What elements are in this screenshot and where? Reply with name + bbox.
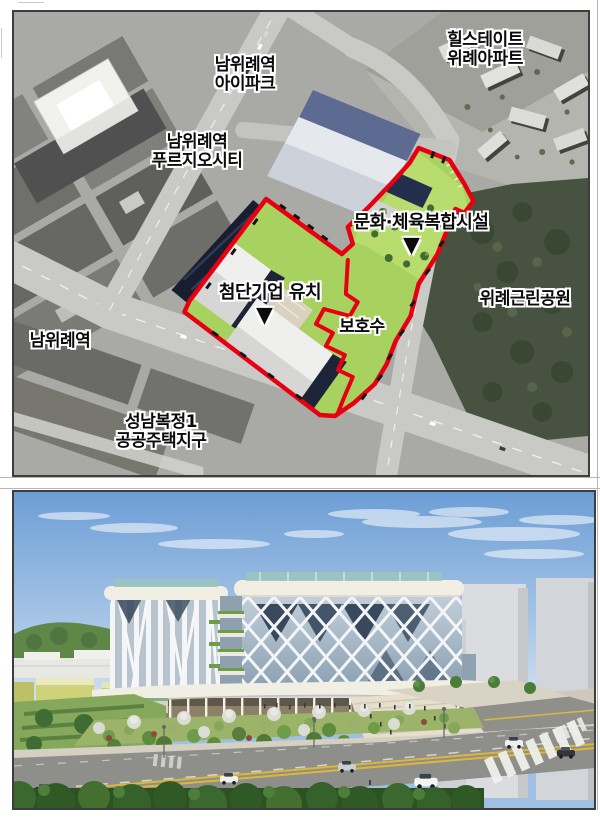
table-border-horizontal-1 bbox=[0, 477, 600, 478]
table-border-vertical-right bbox=[597, 0, 598, 810]
label-namwirye-prugio: 남위례역 푸르지오시티 bbox=[124, 133, 270, 171]
label-culture-sports-complex: 문화·체육복합시설 bbox=[334, 213, 508, 233]
label-namwirye-station: 남위례역 bbox=[18, 332, 102, 351]
label-protected-tree: 보호수 bbox=[320, 318, 404, 337]
label-hillstate-wirye: 힐스테이트 위례아파트 bbox=[422, 31, 548, 69]
site-marker-hightech-icon: ▼ bbox=[256, 305, 273, 327]
table-border-vertical-left bbox=[1, 28, 2, 58]
label-wirye-park: 위례근린공원 bbox=[458, 290, 590, 309]
table-border-horizontal-2 bbox=[0, 488, 600, 489]
render-street-trees-bottom bbox=[14, 781, 484, 808]
label-seongnam-bokjeong: 성남복정1 공공주택지구 bbox=[88, 413, 234, 451]
table-border-top-dash bbox=[18, 2, 44, 3]
render-main-volume bbox=[234, 572, 464, 690]
label-namwirye-ipark: 남위례역 아이파크 bbox=[185, 56, 305, 94]
render-left-tower bbox=[104, 579, 228, 690]
building-rendering-graphic bbox=[14, 492, 594, 808]
building-rendering-figure bbox=[12, 490, 596, 810]
label-hightech-companies: 첨단기업 유치 bbox=[198, 283, 342, 303]
site-marker-culture-icon: ▼ bbox=[403, 235, 420, 257]
render-middle-balconies bbox=[217, 596, 245, 690]
site-aerial-map-figure: 남위례역 아이파크 힐스테이트 위례아파트 남위례역 푸르지오시티 문화·체육복… bbox=[12, 10, 590, 477]
